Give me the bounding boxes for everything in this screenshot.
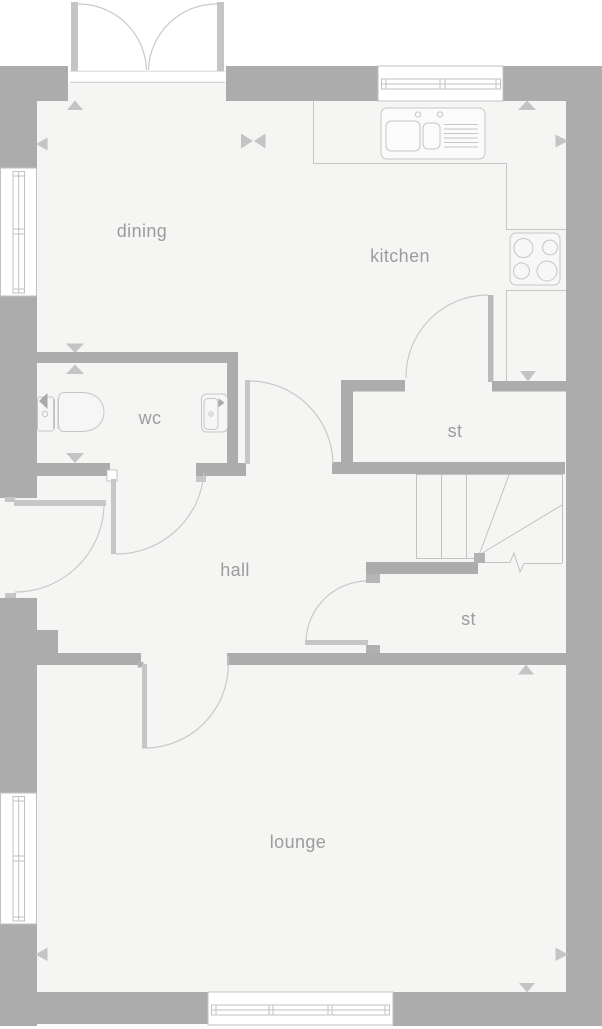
svg-text:st: st xyxy=(448,421,463,441)
svg-text:lounge: lounge xyxy=(270,832,326,852)
svg-text:hall: hall xyxy=(220,560,250,580)
svg-text:kitchen: kitchen xyxy=(370,246,430,266)
svg-text:dining: dining xyxy=(117,221,167,241)
svg-text:wc: wc xyxy=(138,408,162,428)
svg-text:st: st xyxy=(461,609,476,629)
